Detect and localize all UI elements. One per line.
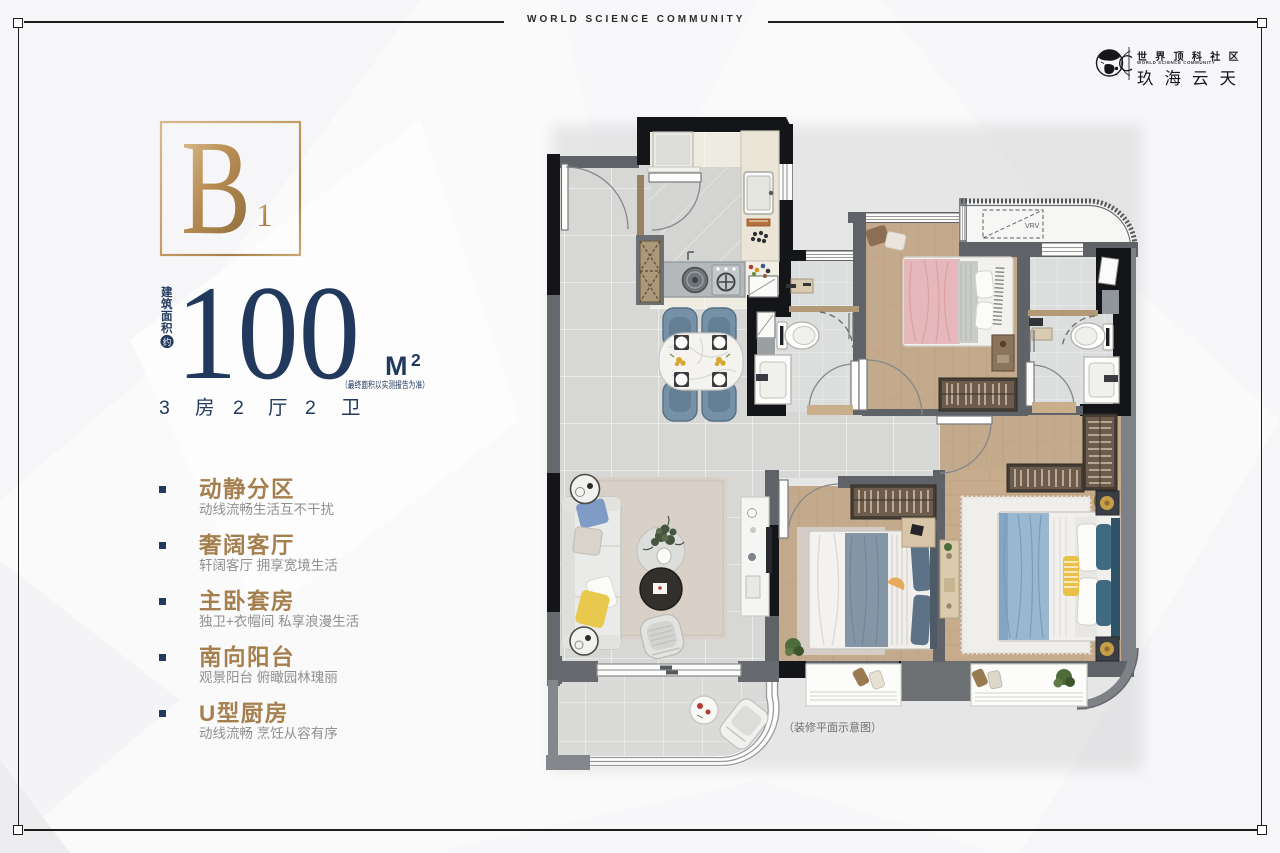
svg-text:2: 2 [411, 350, 421, 370]
svg-text:B: B [181, 116, 251, 262]
svg-text:面: 面 [161, 310, 173, 323]
svg-text:房: 房 [195, 397, 215, 419]
svg-text:约: 约 [163, 336, 172, 347]
svg-text:筑: 筑 [161, 297, 173, 311]
svg-text:积: 积 [161, 321, 173, 335]
svg-text:（最终面积以实测报告为准）: （最终面积以实测报告为准） [341, 379, 429, 390]
svg-text:1: 1 [256, 198, 273, 234]
svg-text:3: 3 [159, 397, 170, 419]
svg-text:2: 2 [233, 397, 244, 419]
svg-text:2: 2 [305, 397, 316, 419]
svg-text:建: 建 [161, 285, 173, 299]
svg-text:（装修平面示意图）: （装修平面示意图） [783, 720, 882, 734]
svg-text:卫: 卫 [341, 397, 361, 419]
svg-text:100: 100 [176, 275, 360, 408]
svg-text:M: M [385, 351, 408, 381]
svg-text:VRV: VRV [1025, 223, 1040, 230]
svg-text:厅: 厅 [268, 397, 288, 419]
